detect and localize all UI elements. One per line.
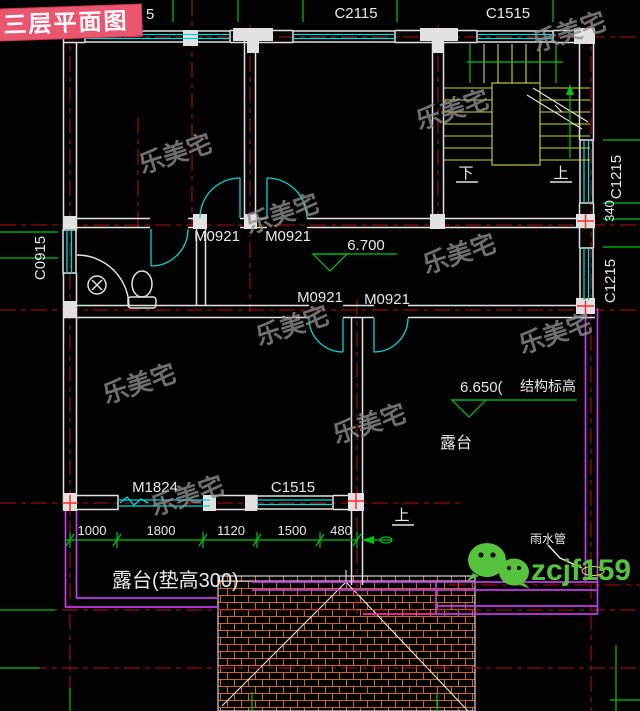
label-c1215-lower: C1215 xyxy=(602,259,619,303)
cad-drawing: 5 C2115 C1515 C1215 340 C1215 C0915 M092… xyxy=(0,0,640,711)
stair-direction-arrow xyxy=(566,84,574,158)
label-elev-terrace: 6.650( xyxy=(460,379,503,396)
watermark-text: 乐美宅 xyxy=(419,229,499,280)
label-c1515-bottom: C1515 xyxy=(271,479,315,496)
door-m0921-a xyxy=(200,178,240,218)
label-terrace-note: 露台(垫高300) xyxy=(112,569,239,592)
watermark-text: 乐美宅 xyxy=(412,85,492,136)
label-c1515-top: C1515 xyxy=(486,5,530,22)
stair-landing xyxy=(492,83,540,165)
watermark-text: 乐美宅 xyxy=(329,399,409,450)
label-stair-up: 上 xyxy=(553,165,568,182)
label-dim-1800: 1800 xyxy=(147,523,176,538)
label-elev-terrace-note: 结构标高 xyxy=(520,378,576,394)
label-dim-1120: 1120 xyxy=(217,523,245,538)
shower-enclosure xyxy=(77,255,129,307)
bathroom-fixtures xyxy=(77,255,156,308)
label-stair-down: 下 xyxy=(458,165,473,182)
page-title: 三层平面图 xyxy=(3,8,129,38)
watermark-text: 乐美宅 xyxy=(515,309,595,360)
label-c0915: C0915 xyxy=(32,236,49,280)
label-terrace: 露台 xyxy=(440,434,472,452)
toilet-bowl-icon xyxy=(132,271,152,297)
label-dim-340: 340 xyxy=(602,200,617,222)
label-c1215-upper: C1215 xyxy=(608,155,625,199)
label-window-top-partial: 5 xyxy=(146,6,154,23)
wechat-id: zcjf159 xyxy=(531,554,631,587)
label-elev-hall: 6.700 xyxy=(347,237,385,254)
label-m0921-a: M0921 xyxy=(194,228,240,245)
label-m0921-d: M0921 xyxy=(364,291,410,308)
watermark-text: 乐美宅 xyxy=(529,7,609,58)
watermarks: 乐美宅 乐美宅 乐美宅 乐美宅 乐美宅 乐美宅 乐美宅 乐美宅 乐美宅 乐美宅 xyxy=(99,7,609,522)
toilet-tank-icon xyxy=(128,297,156,308)
floorplan-canvas: 5 C2115 C1515 C1215 340 C1215 C0915 M092… xyxy=(0,0,640,711)
label-c2115: C2115 xyxy=(334,5,377,22)
walls xyxy=(62,28,595,585)
label-dim-1500: 1500 xyxy=(278,523,307,538)
label-dim-480: 480 xyxy=(330,523,352,538)
label-rain-pipe: 雨水管 xyxy=(530,531,566,546)
title-banner: 三层平面图 xyxy=(0,4,142,41)
label-stair-up2: 上 xyxy=(394,507,409,524)
watermark-text: 乐美宅 xyxy=(99,359,179,410)
door-m0921-d xyxy=(374,318,408,352)
watermark-text: 乐美宅 xyxy=(135,129,215,180)
label-dim-1000: 1000 xyxy=(78,523,107,538)
junction-cross-marks xyxy=(62,214,594,511)
door-bathroom xyxy=(151,229,188,266)
windows xyxy=(63,31,593,509)
